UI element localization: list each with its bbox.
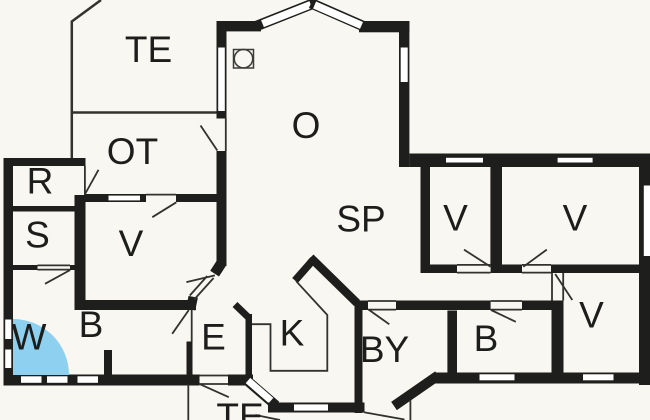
svg-text:TE: TE <box>216 396 263 420</box>
svg-text:S: S <box>25 215 50 256</box>
svg-text:B: B <box>79 304 104 345</box>
svg-text:OT: OT <box>107 131 158 172</box>
svg-text:B: B <box>474 318 499 359</box>
svg-text:V: V <box>119 223 144 264</box>
svg-text:TE: TE <box>125 29 172 70</box>
svg-text:O: O <box>292 105 321 146</box>
svg-text:K: K <box>280 313 305 354</box>
svg-text:R: R <box>27 161 54 202</box>
svg-text:BY: BY <box>360 329 409 370</box>
svg-text:V: V <box>579 295 604 336</box>
svg-text:W: W <box>12 317 47 358</box>
svg-text:V: V <box>563 198 588 239</box>
svg-text:E: E <box>201 317 226 358</box>
svg-text:V: V <box>443 198 468 239</box>
svg-text:SP: SP <box>336 199 385 240</box>
